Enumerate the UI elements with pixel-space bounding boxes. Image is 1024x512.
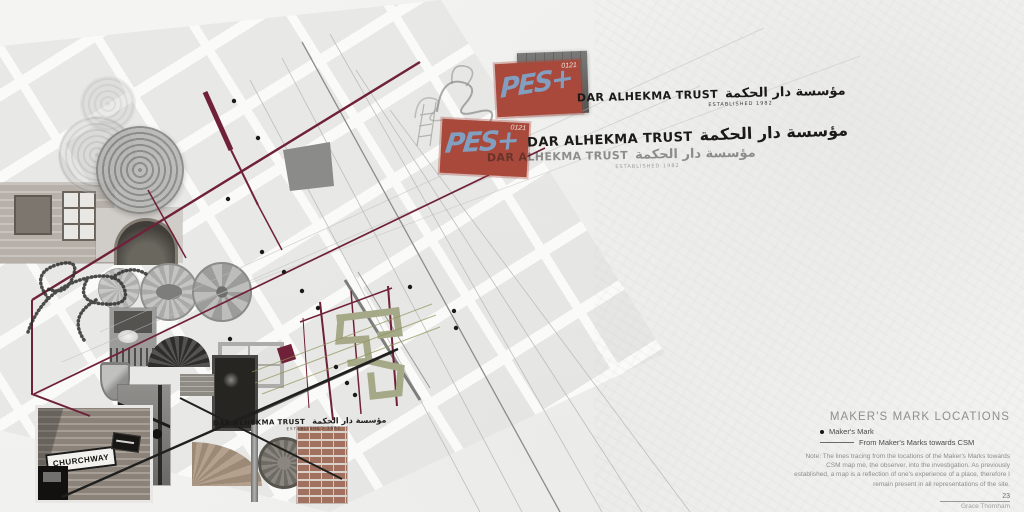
plant-silhouette-sketch — [28, 263, 146, 340]
legend: MAKER'S MARK LOCATIONS Maker's Mark From… — [690, 411, 1010, 510]
legend-title: MAKER'S MARK LOCATIONS — [690, 411, 1010, 423]
legend-note: Note: The lines tracing from the locatio… — [794, 452, 1010, 490]
building-footprint-gray — [283, 142, 334, 191]
graffiti-code: 0121 — [561, 62, 577, 70]
author-name: Grace Thornham — [690, 503, 1010, 510]
trust-name-arabic: مؤسسة دار الحكمة — [635, 146, 756, 163]
legend-item-makers-mark: Maker's Mark — [820, 426, 1010, 437]
maker-mark-dots — [226, 99, 458, 397]
author-divider — [940, 501, 1010, 502]
legend-item-towards-csm: From Maker's Marks towards CSM — [820, 437, 1010, 448]
maroon-route-lines — [32, 62, 545, 420]
red-graffiti-stamp: PES+ 0121 — [495, 60, 583, 117]
portfolio-page: CHURCHWAY — [0, 0, 1024, 512]
dot-marker-icon — [820, 430, 824, 434]
trust-name-arabic: مؤسسة دار الحكمة — [725, 83, 846, 101]
legend-item-label: Maker's Mark — [829, 426, 874, 437]
trust-stamp-faded: DAR ALHEKMA TRUST مؤسسة دار الحكمة ESTAB… — [487, 146, 756, 173]
trust-name: DAR ALHEKMA TRUST — [487, 149, 628, 164]
trust-name-arabic: مؤسسة دار الحكمة — [312, 415, 386, 425]
graffiti-code: 0121 — [510, 124, 526, 132]
legend-item-label: From Maker's Marks towards CSM — [859, 437, 974, 448]
page-number: 23 — [690, 493, 1010, 500]
line-marker-icon — [820, 442, 854, 443]
maroon-marker-block — [277, 344, 296, 364]
